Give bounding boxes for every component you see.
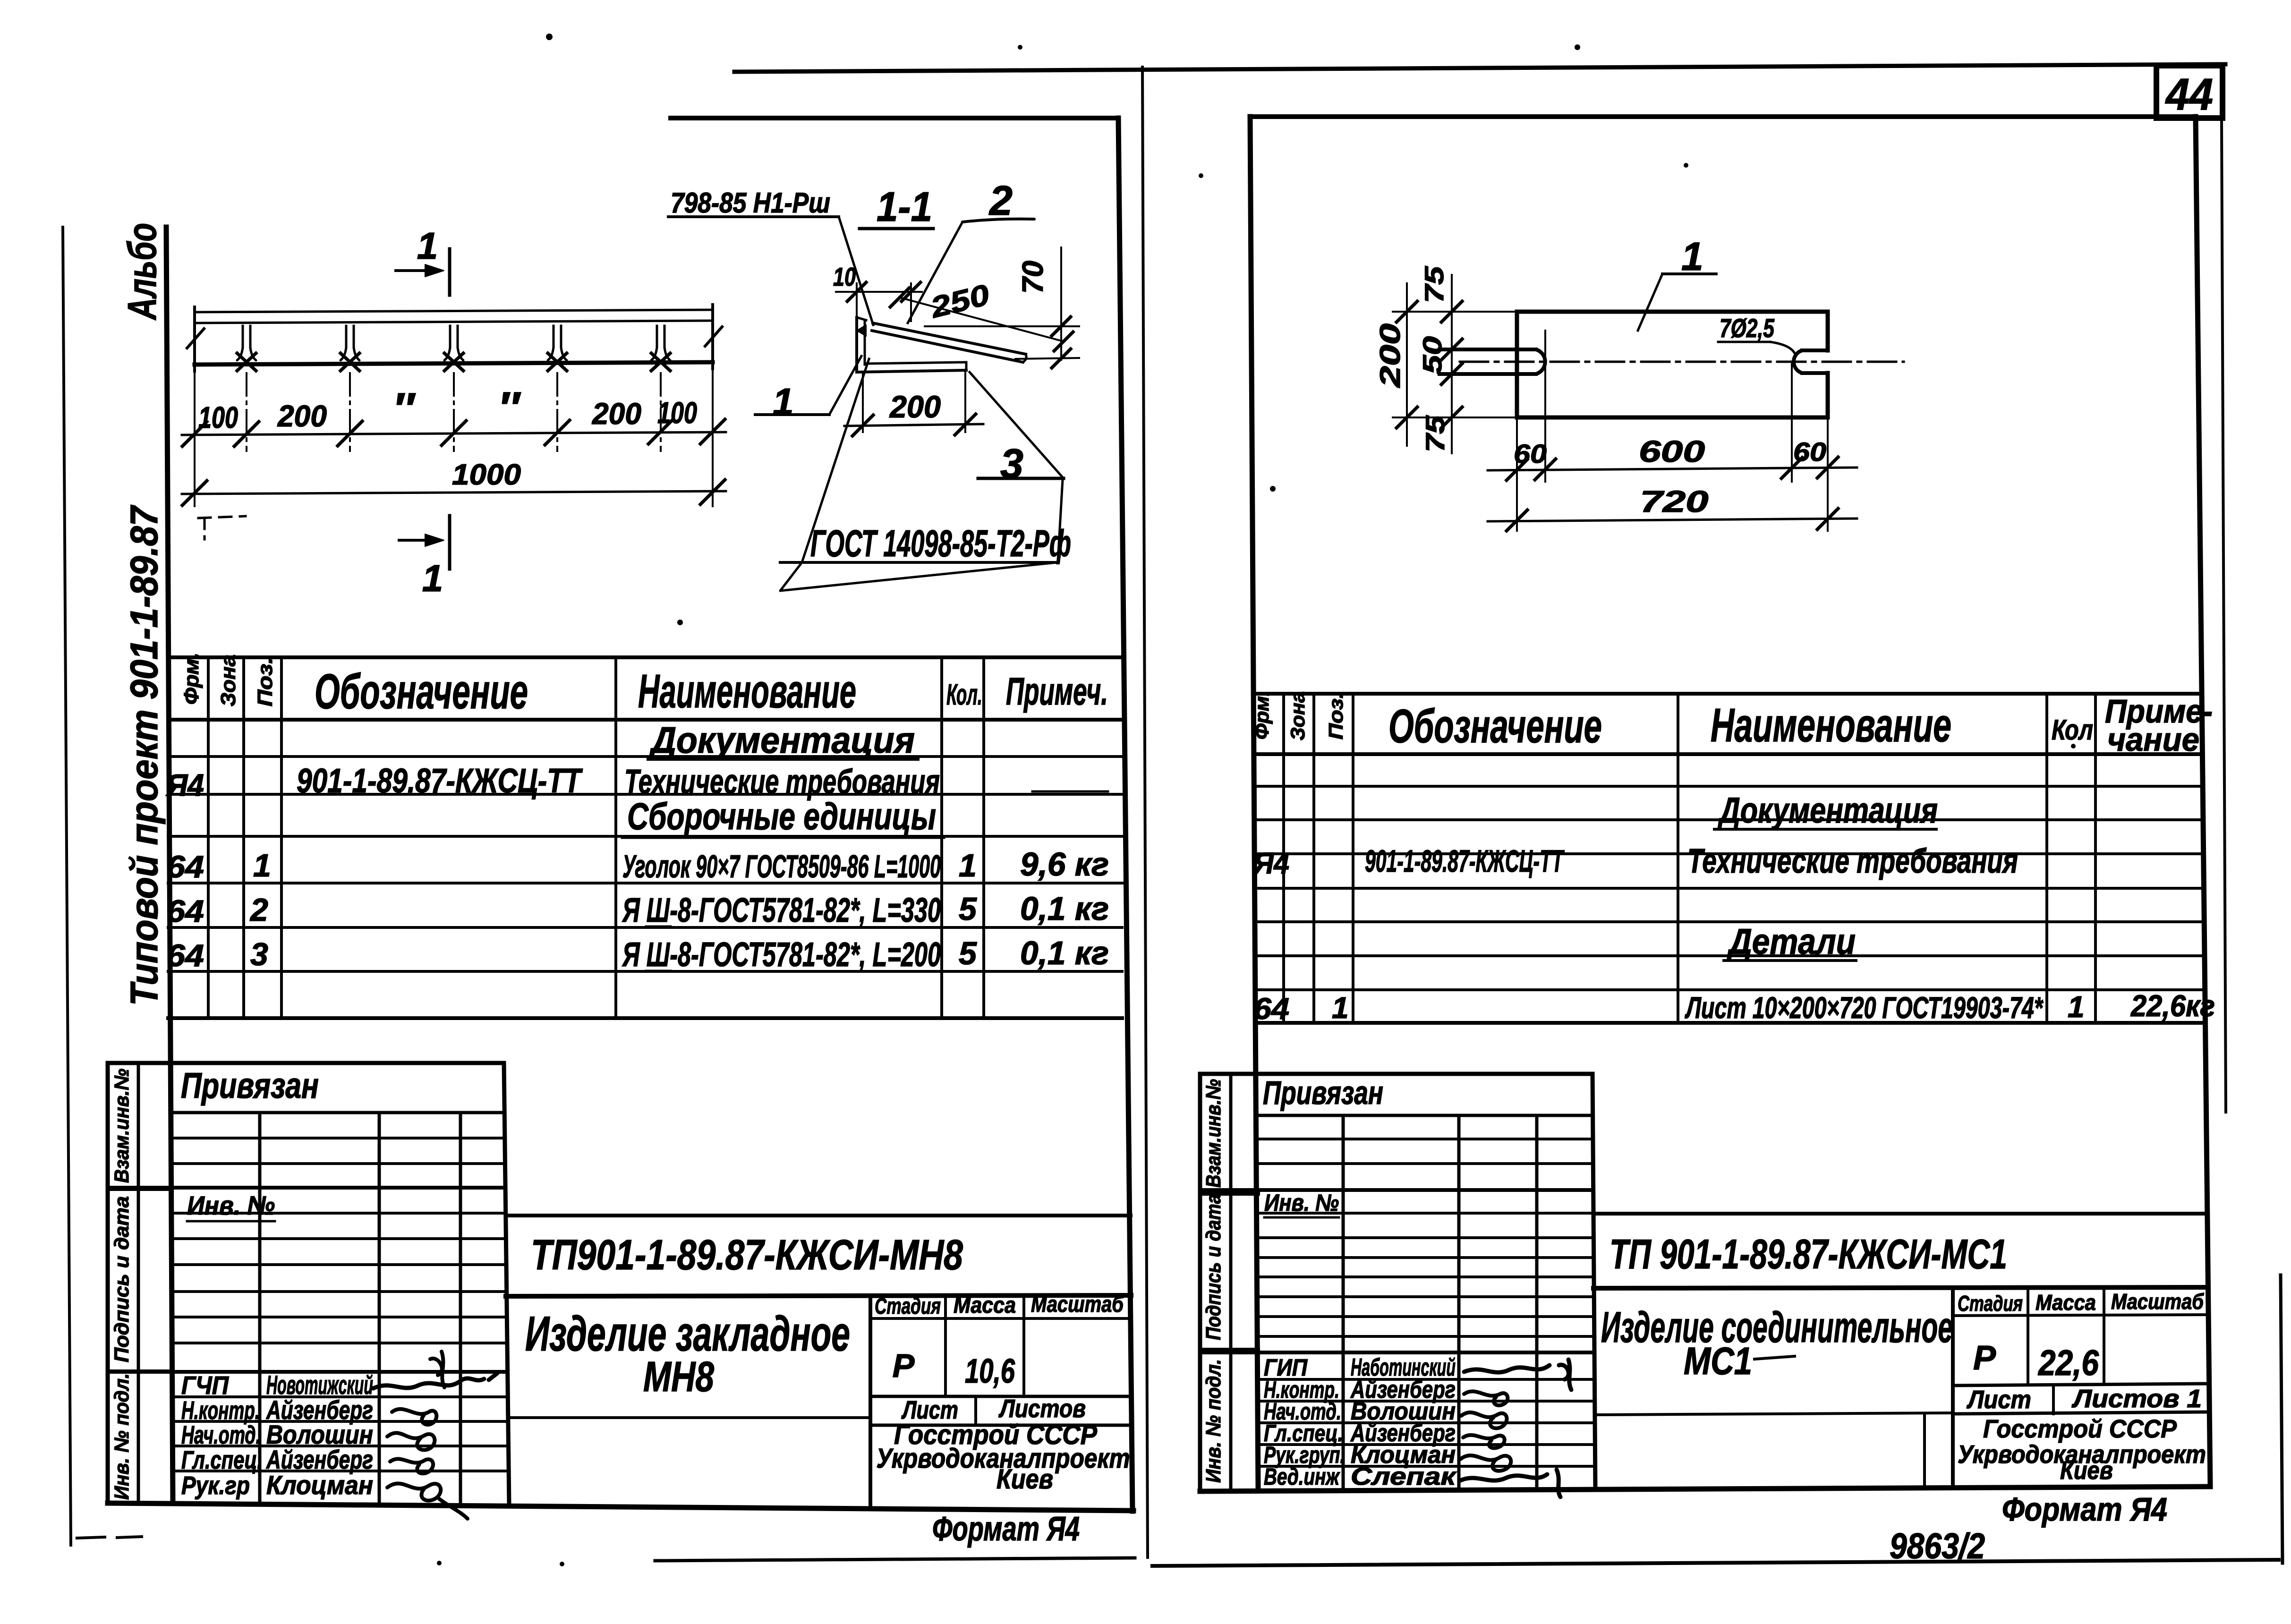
svg-text:Р: Р bbox=[1973, 1339, 1996, 1377]
svg-text:Формат Я4: Формат Я4 bbox=[2002, 1491, 2167, 1528]
svg-text:Фрм.: Фрм. bbox=[1251, 690, 1273, 740]
svg-text:Обозначение: Обозначение bbox=[1388, 700, 1602, 753]
svg-text:Масштаб: Масштаб bbox=[2111, 1289, 2204, 1314]
svg-text:Примеч.: Примеч. bbox=[1006, 670, 1108, 713]
svg-text:Поз.: Поз. bbox=[254, 657, 277, 706]
svg-text:Подпись и дата: Подпись и дата bbox=[1202, 1194, 1225, 1340]
svg-text:2: 2 bbox=[988, 177, 1013, 224]
svg-text:″: ″ bbox=[498, 383, 521, 433]
svg-text:Сборочные единицы: Сборочные единицы bbox=[627, 795, 936, 837]
svg-text:Стадия: Стадия bbox=[1958, 1291, 2023, 1316]
svg-text:″: ″ bbox=[392, 384, 416, 434]
svg-text:Подпись и дата: Подпись и дата bbox=[111, 1196, 133, 1362]
svg-text:Инв. № подл.: Инв. № подл. bbox=[111, 1373, 133, 1500]
svg-text:5: 5 bbox=[959, 935, 977, 971]
svg-text:Инв. №: Инв. № bbox=[1264, 1190, 1339, 1216]
svg-text:Листов 1: Листов 1 bbox=[2071, 1385, 2202, 1413]
svg-text:901-1-89.87-КЖСЦ-ТТ: 901-1-89.87-КЖСЦ-ТТ bbox=[297, 762, 583, 800]
svg-text:ГЧП: ГЧП bbox=[181, 1371, 229, 1400]
svg-text:Я Ш-8-ГОСТ5781-82*, L=200: Я Ш-8-ГОСТ5781-82*, L=200 bbox=[622, 936, 941, 974]
svg-text:1000: 1000 bbox=[452, 459, 521, 491]
svg-text:1-1: 1-1 bbox=[877, 183, 932, 230]
svg-text:Гл.спец.: Гл.спец. bbox=[181, 1446, 263, 1474]
svg-text:Привязан: Привязан bbox=[181, 1066, 319, 1106]
svg-text:22,6кг: 22,6кг bbox=[2130, 989, 2215, 1023]
svg-text:Инв. № подл.: Инв. № подл. bbox=[1202, 1359, 1225, 1483]
svg-text:720: 720 bbox=[1640, 485, 1709, 519]
svg-text:1: 1 bbox=[253, 848, 271, 884]
svg-text:22,6: 22,6 bbox=[2037, 1343, 2099, 1383]
svg-text:чание: чание bbox=[2107, 721, 2199, 758]
svg-text:1: 1 bbox=[959, 848, 977, 884]
svg-text:Кол: Кол bbox=[2052, 714, 2093, 746]
svg-text:ГОСТ 14098-85-Т2-Рф: ГОСТ 14098-85-Т2-Рф bbox=[810, 522, 1071, 564]
svg-text:МН8: МН8 bbox=[643, 1353, 714, 1401]
svg-text:10: 10 bbox=[833, 262, 856, 291]
svg-text:Наименование: Наименование bbox=[1711, 699, 1951, 752]
svg-text:ТП 901-1-89.87-КЖСИ-МС1: ТП 901-1-89.87-КЖСИ-МС1 bbox=[1610, 1231, 2007, 1277]
svg-text:200: 200 bbox=[889, 389, 941, 424]
svg-text:1: 1 bbox=[1681, 234, 1703, 279]
svg-text:2: 2 bbox=[249, 892, 268, 928]
svg-text:Масштаб: Масштаб bbox=[1031, 1292, 1124, 1317]
svg-text:0,1 кг: 0,1 кг bbox=[1020, 890, 1109, 927]
svg-text:Документация: Документация bbox=[1717, 791, 1938, 831]
svg-text:44: 44 bbox=[2165, 69, 2213, 119]
svg-text:Наименование: Наименование bbox=[638, 665, 856, 718]
svg-text:Взам.инв.№: Взам.инв.№ bbox=[1202, 1079, 1225, 1188]
svg-text:Стадия: Стадия bbox=[875, 1294, 941, 1319]
svg-text:Взам.инв.№: Взам.инв.№ bbox=[111, 1069, 133, 1183]
svg-text:Альбо: Альбо bbox=[120, 223, 165, 321]
svg-text:Р: Р bbox=[893, 1347, 915, 1384]
svg-text:Обозначение: Обозначение bbox=[315, 664, 528, 719]
svg-text:100: 100 bbox=[657, 396, 697, 430]
svg-text:Изделие соединительное: Изделие соединительное bbox=[1601, 1303, 1953, 1352]
svg-text:Типовой проект 901-1-89.87: Типовой проект 901-1-89.87 bbox=[123, 505, 166, 1006]
svg-text:Я Ш-8-ГОСТ5781-82*, L=330: Я Ш-8-ГОСТ5781-82*, L=330 bbox=[622, 892, 941, 929]
svg-text:64: 64 bbox=[1253, 992, 1289, 1026]
svg-text:Технические требования: Технические требования bbox=[1687, 842, 2018, 880]
svg-text:3: 3 bbox=[250, 936, 268, 972]
svg-text:200: 200 bbox=[277, 399, 327, 433]
svg-text:60: 60 bbox=[1793, 437, 1826, 467]
svg-text:1: 1 bbox=[2068, 990, 2085, 1024]
svg-text:Детали: Детали bbox=[1727, 922, 1856, 962]
svg-text:75: 75 bbox=[1419, 266, 1449, 303]
svg-text:60: 60 bbox=[1514, 439, 1547, 468]
svg-text:64: 64 bbox=[166, 893, 204, 928]
svg-text:Кол.: Кол. bbox=[946, 679, 982, 711]
svg-text:1: 1 bbox=[1332, 991, 1349, 1025]
svg-text:901-1-89.87-КЖСЦ-ТТ: 901-1-89.87-КЖСЦ-ТТ bbox=[1365, 843, 1565, 878]
svg-text:Фрм.: Фрм. bbox=[180, 653, 203, 705]
svg-text:1: 1 bbox=[417, 225, 438, 267]
svg-text:Киев: Киев bbox=[996, 1464, 1053, 1495]
svg-text:ТП901-1-89.87-КЖСИ-МН8: ТП901-1-89.87-КЖСИ-МН8 bbox=[531, 1232, 963, 1279]
svg-text:Рук.гр: Рук.гр bbox=[181, 1471, 250, 1500]
svg-text:Масса: Масса bbox=[954, 1293, 1016, 1318]
svg-text:1: 1 bbox=[773, 381, 794, 423]
svg-text:Инв. №: Инв. № bbox=[187, 1190, 275, 1220]
svg-text:0,1 кг: 0,1 кг bbox=[1020, 935, 1109, 971]
svg-text:600: 600 bbox=[1639, 434, 1705, 468]
svg-text:Листов: Листов bbox=[998, 1394, 1086, 1423]
svg-text:64: 64 bbox=[166, 938, 204, 973]
svg-text:Зона: Зона bbox=[217, 655, 240, 706]
svg-text:5: 5 bbox=[959, 891, 977, 927]
svg-text:Слепак: Слепак bbox=[1351, 1463, 1457, 1490]
svg-text:Клоцман: Клоцман bbox=[266, 1470, 373, 1500]
svg-text:Формат Я4: Формат Я4 bbox=[932, 1510, 1080, 1548]
svg-text:10,6: 10,6 bbox=[965, 1352, 1015, 1390]
svg-text:Масса: Масса bbox=[2035, 1290, 2096, 1315]
svg-text:7Ø2,5: 7Ø2,5 bbox=[1720, 313, 1775, 343]
svg-text:64: 64 bbox=[166, 849, 204, 884]
svg-text:Поз.: Поз. bbox=[1325, 692, 1347, 740]
svg-text:Госстрой СССР: Госстрой СССР bbox=[1983, 1415, 2177, 1443]
svg-text:9863/2: 9863/2 bbox=[1890, 1526, 1985, 1566]
svg-text:Лист: Лист bbox=[1966, 1386, 2031, 1414]
svg-text:Зона: Зона bbox=[1286, 691, 1309, 740]
svg-text:70: 70 bbox=[1017, 261, 1049, 294]
svg-text:МС1: МС1 bbox=[1684, 1340, 1752, 1383]
svg-text:200: 200 bbox=[1374, 323, 1406, 388]
svg-text:798-85 Н1-Рш: 798-85 Н1-Рш bbox=[671, 187, 830, 219]
svg-text:Вед.инж: Вед.инж bbox=[1264, 1463, 1340, 1490]
svg-text:9,6 кг: 9,6 кг bbox=[1020, 846, 1109, 883]
svg-text:Привязан: Привязан bbox=[1263, 1074, 1383, 1111]
svg-text:50: 50 bbox=[1417, 336, 1447, 374]
svg-text:200: 200 bbox=[592, 397, 641, 431]
svg-text:Документация: Документация bbox=[648, 719, 915, 761]
svg-text:75: 75 bbox=[1420, 415, 1450, 452]
svg-text:Киев: Киев bbox=[2060, 1456, 2113, 1485]
svg-text:Н.контр.: Н.контр. bbox=[181, 1396, 260, 1425]
svg-text:Я4: Я4 bbox=[165, 767, 204, 802]
svg-text:Уголок 90×7 ГОСТ8509-86 L=1000: Уголок 90×7 ГОСТ8509-86 L=1000 bbox=[622, 849, 941, 884]
svg-text:100: 100 bbox=[198, 400, 238, 434]
svg-text:1: 1 bbox=[422, 557, 443, 599]
svg-text:Нач.отд.: Нач.отд. bbox=[181, 1421, 261, 1449]
svg-text:Я4: Я4 bbox=[1252, 846, 1289, 880]
svg-text:Лист 10×200×720 ГОСТ19903-74*: Лист 10×200×720 ГОСТ19903-74* bbox=[1685, 991, 2044, 1025]
